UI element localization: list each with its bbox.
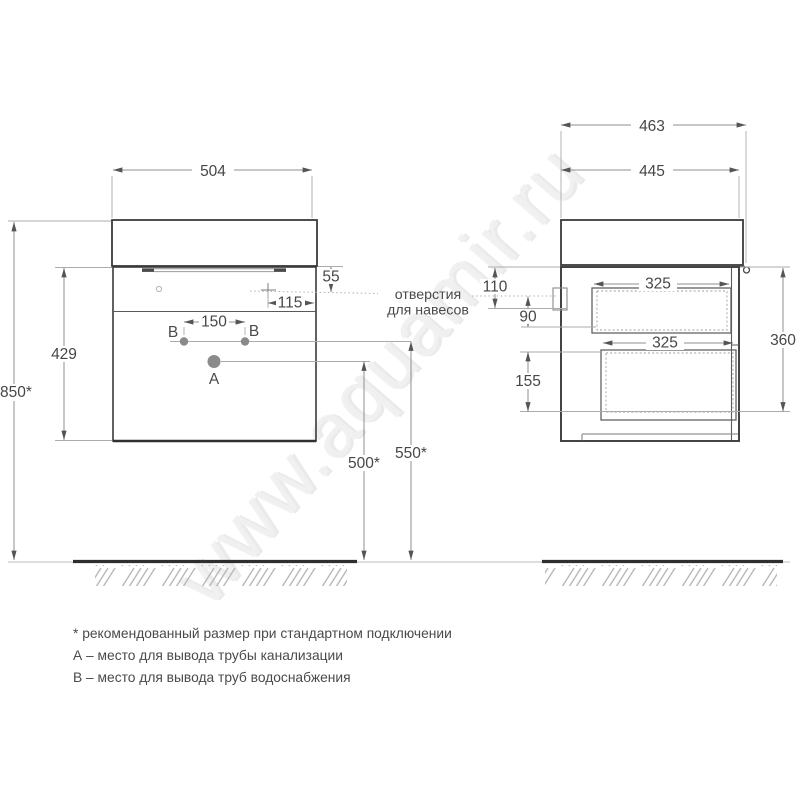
ground-hatch-front: [95, 565, 347, 586]
point-b-right-label: B: [249, 323, 259, 340]
label-drawer-bottom-depth: 325: [652, 335, 678, 352]
label-overall-height: 850*: [0, 384, 32, 401]
side-cabinet-body: [561, 267, 739, 441]
drawer-top: [592, 288, 731, 333]
footnote-point-a: А – место для вывода трубы канализации: [73, 648, 343, 663]
label-depth-carcass: 445: [639, 163, 665, 180]
footnote-recommended-size: * рекомендованный размер при стандартном…: [73, 626, 452, 641]
label-hanger-bottom-offset: 90: [519, 309, 537, 326]
hanger-holes-dotted-line-front: [250, 291, 378, 294]
drawer-bottom: [601, 350, 736, 420]
label-hanger-inset: 115: [278, 295, 303, 312]
mounting-hook-icon: [739, 267, 750, 274]
drawing-canvas: www.aquamir.ru www.aquamir.ru: [0, 0, 800, 800]
wall-hanger-bracket: [553, 288, 567, 310]
label-drawer-top-depth: 325: [645, 276, 671, 293]
ground-hatch-side: [545, 565, 777, 586]
point-b-left: [180, 337, 188, 345]
label-depth-overall: 463: [639, 118, 665, 135]
front-handle-groove: [142, 269, 286, 272]
point-a-label: A: [209, 371, 220, 388]
footnotes: * рекомендованный размер при стандартном…: [73, 626, 452, 685]
footnote-point-b: В – место для вывода труб водоснабжения: [73, 670, 351, 685]
side-sink-top: [561, 220, 743, 265]
label-holes-spacing: 150: [201, 314, 227, 331]
drawer-bottom-inner-dashed: [606, 353, 733, 412]
callout-line2: для навесов: [387, 303, 469, 319]
label-hanger-top-offset: 110: [483, 279, 508, 296]
drawer-top-inner-dashed: [597, 291, 727, 330]
hanger-hole-left-icon: [156, 286, 161, 291]
label-side-height: 360: [770, 332, 796, 349]
label-supply-height: 550*: [395, 445, 427, 462]
point-a: [208, 355, 221, 368]
point-b-left-label: B: [168, 324, 178, 341]
label-drawer-bottom-height: 155: [515, 373, 541, 390]
hanger-holes-callout: отверстия для навесов: [387, 287, 469, 319]
floor: [8, 562, 790, 587]
side-view: [553, 220, 750, 441]
vanity-dimension-drawing: www.aquamir.ru www.aquamir.ru: [0, 0, 800, 800]
front-sink-top: [112, 220, 317, 266]
label-hanger-drop: 55: [322, 269, 339, 286]
label-front-width: 504: [200, 163, 226, 180]
label-carcass-height: 429: [51, 346, 77, 363]
hanger-hole-right-cross-icon: [261, 283, 276, 298]
label-drain-height: 500*: [348, 455, 380, 472]
callout-line1: отверстия: [395, 287, 461, 303]
